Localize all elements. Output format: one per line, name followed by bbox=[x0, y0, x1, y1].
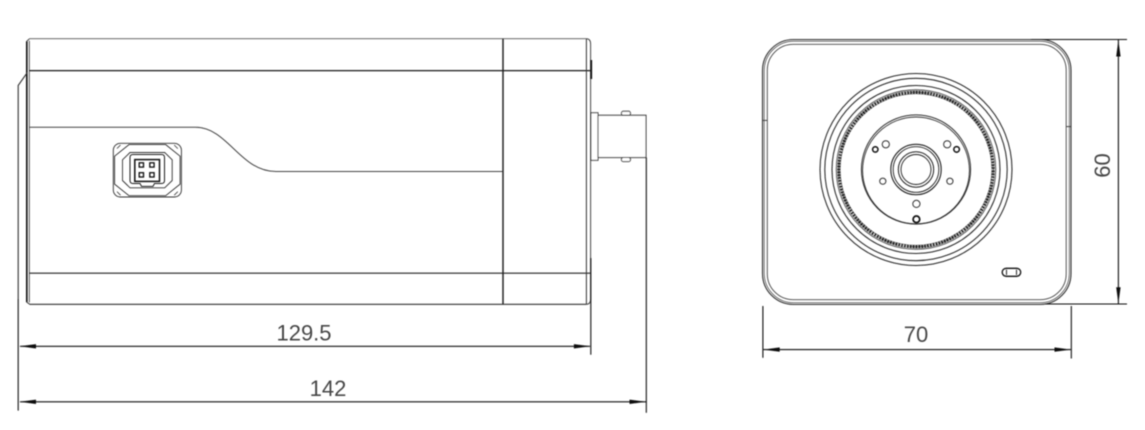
svg-text:142: 142 bbox=[310, 376, 347, 401]
svg-text:60: 60 bbox=[1090, 153, 1115, 177]
svg-text:129.5: 129.5 bbox=[276, 321, 331, 346]
svg-text:70: 70 bbox=[904, 322, 928, 347]
